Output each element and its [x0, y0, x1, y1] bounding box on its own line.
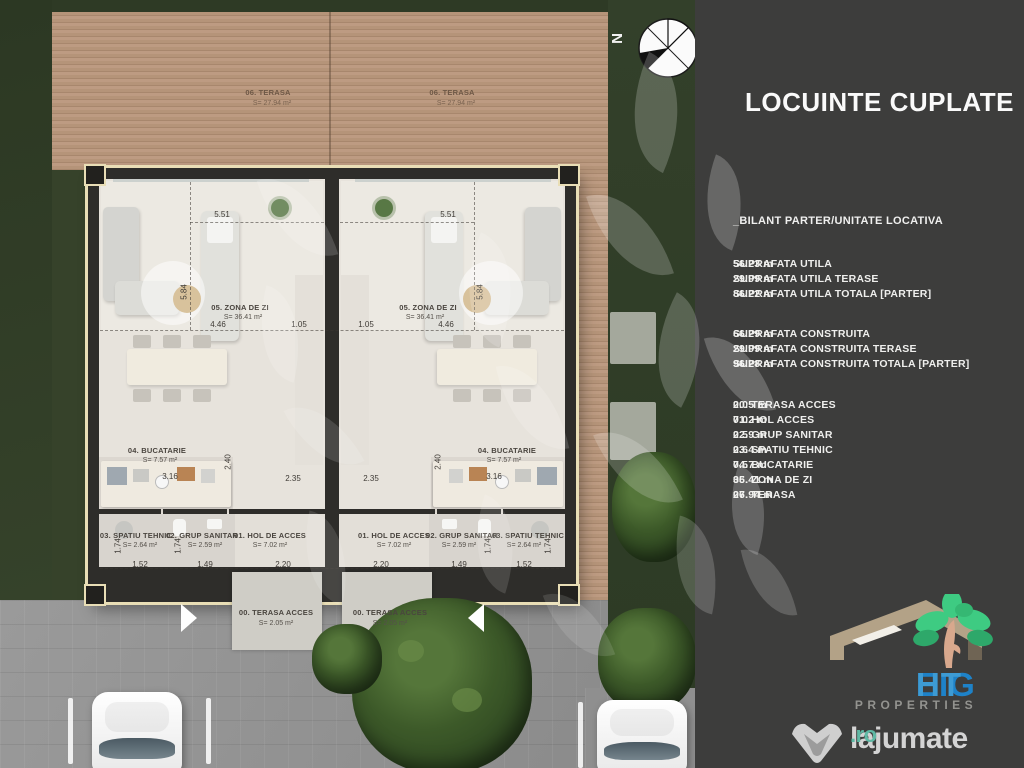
- room-label: 01. HOL DE ACCES: [234, 531, 306, 540]
- dimension: 2.35: [285, 474, 301, 483]
- dimension-line: [100, 330, 564, 331]
- table-row: 04. BUCATARIE7.57 m: [733, 459, 1023, 474]
- table-row: 00. TERASA ACCES2.05 m: [733, 399, 1023, 414]
- properties-wordmark: PROPERTIES: [818, 698, 1014, 712]
- row-value: 66.29 m: [733, 328, 773, 340]
- room-label: 00. TERASA ACCES: [353, 608, 427, 617]
- fridge: [107, 467, 127, 485]
- room-label: 06. TERASA: [429, 88, 474, 97]
- dimension-line: [340, 222, 474, 223]
- car-windshield: [99, 738, 175, 759]
- chair: [513, 389, 531, 402]
- chair: [163, 389, 181, 402]
- dimension: 1.74: [174, 538, 183, 554]
- entry-arrow-icon: [468, 604, 484, 632]
- row-value: 96.28 m: [733, 358, 773, 370]
- chair: [193, 389, 211, 402]
- car-windshield: [604, 742, 680, 761]
- cabinet: [515, 469, 531, 482]
- pantry-column: [295, 275, 323, 465]
- car-top-view: [92, 692, 182, 768]
- table-row: 06. TERASA27.94 m: [733, 489, 1023, 504]
- corner-post: [86, 166, 104, 184]
- dimension: 1.52: [516, 560, 532, 569]
- chair: [193, 335, 211, 348]
- bush: [612, 452, 696, 562]
- chair: [163, 335, 181, 348]
- chair: [133, 389, 151, 402]
- parking-line: [68, 698, 73, 764]
- entry-arrow-icon: [181, 604, 197, 632]
- car-hood: [105, 702, 170, 732]
- room-area: S= 2.59 m²: [442, 542, 476, 549]
- dimension: 1.74: [544, 538, 553, 554]
- dimension: 4.46: [438, 320, 454, 329]
- grass-left: [0, 0, 52, 600]
- dimension-line: [190, 222, 324, 223]
- north-compass-icon: N: [608, 12, 704, 84]
- dimension: 5.84: [476, 284, 485, 300]
- eight-properties-logo: EIGHT PROPERTIES: [818, 594, 1014, 720]
- page-title: LOCUINTE CUPLATE: [745, 87, 1014, 118]
- corner-post: [560, 586, 578, 604]
- pillow: [431, 217, 457, 243]
- plant: [375, 199, 393, 217]
- listing-image: N 06. TERASA S= 27.94 m² 06. TERASA S= 2…: [0, 0, 1024, 768]
- tree-highlight: [398, 640, 424, 662]
- room-area: S= 2.64 m²: [507, 542, 541, 549]
- dimension: 1.74: [484, 538, 493, 554]
- table-row: 02. GRUP SANITAR2.59 m: [733, 429, 1023, 444]
- dimension: 3.16: [486, 472, 502, 481]
- row-value: 36.41 m: [733, 474, 773, 486]
- lajumate-heart-icon: [788, 720, 846, 764]
- table-row: 01. HOL ACCES7.02 m: [733, 414, 1023, 429]
- dimension: 1.05: [291, 320, 307, 329]
- row-value: 27.94 m: [733, 489, 773, 501]
- row-value: 29.99 m: [733, 343, 773, 355]
- built-area-table: SUPRAFATA CONSTRUITA66.29 m SUPRAFATA CO…: [733, 328, 1023, 373]
- row-value: 2.64 m: [733, 444, 767, 456]
- lajumate-tld: .ro: [850, 722, 877, 748]
- dimension: 5.84: [180, 284, 189, 300]
- room-area: S= 7.02 m²: [377, 542, 411, 549]
- room-area: S= 2.05 m²: [373, 620, 407, 627]
- rooms-table: 00. TERASA ACCES2.05 m 01. HOL ACCES7.02…: [733, 399, 1023, 504]
- row-value: 7.02 m: [733, 414, 767, 426]
- table-row: SUPRAFATA UTILA56.23 m: [733, 258, 1023, 273]
- room-area: S= 27.94 m²: [437, 100, 475, 107]
- dimension: 2.40: [224, 454, 233, 470]
- dimension: 1.74: [114, 538, 123, 554]
- room-area: S= 36.41 m²: [224, 314, 262, 321]
- unit-left-floor: [99, 179, 325, 567]
- dimension: 5.51: [440, 210, 456, 219]
- lajumate-watermark: lajumate.ro: [788, 720, 1018, 764]
- corner-post: [86, 586, 104, 604]
- room-area: S= 7.57 m²: [487, 457, 521, 464]
- pantry-column: [341, 275, 369, 465]
- bush: [312, 624, 382, 694]
- section-title: _BILANT PARTER/UNITATE LOCATIVA: [733, 215, 943, 227]
- car-top-view: [597, 700, 687, 768]
- room-area: S= 2.59 m²: [188, 542, 222, 549]
- chair: [453, 389, 471, 402]
- room-area: S= 7.02 m²: [253, 542, 287, 549]
- room-label: 05. ZONA DE ZI: [399, 303, 457, 312]
- room-label: 03. SPATIU TEHNIC: [492, 531, 564, 540]
- cutting-board: [177, 467, 195, 481]
- room-area: S= 2.05 m²: [259, 620, 293, 627]
- room-label: 01. HOL DE ACCES: [358, 531, 430, 540]
- dimension: 2.35: [363, 474, 379, 483]
- chair: [483, 335, 501, 348]
- table-row: SUPRAFATA CONSTRUITA TERASE29.99 m: [733, 343, 1023, 358]
- room-label: 06. TERASA: [245, 88, 290, 97]
- dimension: 3.16: [162, 472, 178, 481]
- table-row: 05. ZONA DE ZI36.41 m: [733, 474, 1023, 489]
- dimension-line: [474, 182, 475, 330]
- chair: [483, 389, 501, 402]
- bathroom-sink: [442, 519, 457, 529]
- table-row: SUPRAFATA UTILA TERASE29.99 m: [733, 273, 1023, 288]
- parking-line: [206, 698, 211, 764]
- dimension-line: [100, 568, 564, 569]
- corner-post: [560, 166, 578, 184]
- plant: [271, 199, 289, 217]
- row-value: 2.05 m: [733, 399, 767, 411]
- room-label: 05. ZONA DE ZI: [211, 303, 269, 312]
- table-row: SUPRAFATA CONSTRUITA TOTALA [PARTER]96.2…: [733, 358, 1023, 373]
- dimension: 2.40: [434, 454, 443, 470]
- pillow: [207, 217, 233, 243]
- room-area: S= 27.94 m²: [253, 100, 291, 107]
- dimension-line: [190, 182, 191, 330]
- tree-highlight: [452, 688, 482, 712]
- room-label: 00. TERASA ACCES: [239, 608, 313, 617]
- deck-seam: [329, 12, 331, 170]
- chair: [453, 335, 471, 348]
- north-label: N: [609, 33, 626, 44]
- dining-table: [127, 349, 227, 385]
- table-row: SUPRAFATA UTILA TOTALA [PARTER]86.22 m: [733, 288, 1023, 303]
- row-value: 56.23 m: [733, 258, 773, 270]
- row-value: 29.99 m: [733, 273, 773, 285]
- dining-table: [437, 349, 537, 385]
- dimension: 2.20: [275, 560, 291, 569]
- grass-top: [52, 0, 608, 12]
- bush: [598, 608, 696, 712]
- dimension: 5.51: [214, 210, 230, 219]
- room-area: S= 7.57 m²: [143, 457, 177, 464]
- room-label: 04. BUCATARIE: [128, 446, 186, 455]
- stove: [449, 469, 463, 483]
- dimension: 1.49: [451, 560, 467, 569]
- bathroom-sink: [207, 519, 222, 529]
- chair: [133, 335, 151, 348]
- chair: [513, 335, 531, 348]
- room-label: 03. SPATIU TEHNIC: [100, 531, 172, 540]
- eight-building-tree-icon: [828, 594, 1004, 672]
- car-hood: [610, 709, 675, 736]
- unit-right-floor: [339, 179, 565, 567]
- row-value: 2.59 m: [733, 429, 767, 441]
- parking-line: [578, 702, 583, 768]
- room-label: 04. BUCATARIE: [478, 446, 536, 455]
- cabinet: [133, 469, 149, 482]
- window-band: [355, 179, 551, 182]
- fridge: [537, 467, 557, 485]
- stove: [201, 469, 215, 483]
- dimension: 1.49: [197, 560, 213, 569]
- useful-area-table: SUPRAFATA UTILA56.23 m SUPRAFATA UTILA T…: [733, 258, 1023, 303]
- dimension: 1.52: [132, 560, 148, 569]
- room-area: S= 2.64 m²: [123, 542, 157, 549]
- dimension: 2.20: [373, 560, 389, 569]
- table-row: 03. SPATIU TEHNIC2.64 m: [733, 444, 1023, 459]
- row-value: 86.22 m: [733, 288, 773, 300]
- cutting-board: [469, 467, 487, 481]
- window-band: [113, 179, 309, 182]
- row-value: 7.57 m: [733, 459, 767, 471]
- stepping-pad: [610, 312, 656, 364]
- dimension: 1.05: [358, 320, 374, 329]
- dimension: 4.46: [210, 320, 226, 329]
- table-row: SUPRAFATA CONSTRUITA66.29 m: [733, 328, 1023, 343]
